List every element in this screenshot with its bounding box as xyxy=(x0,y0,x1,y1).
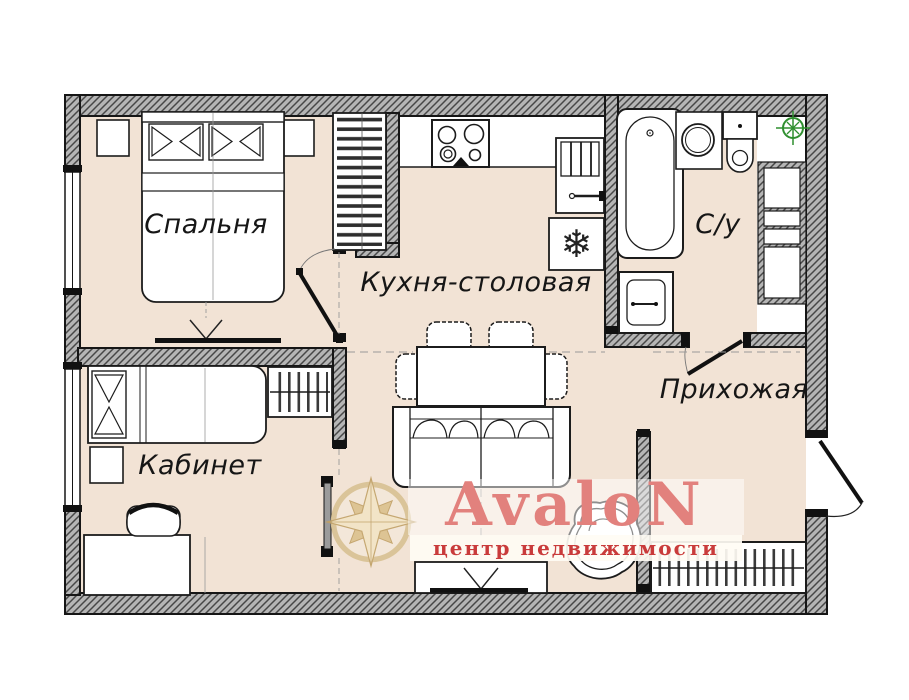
closet-shelves-icon xyxy=(337,117,382,246)
wall-bathroom-bottom-right xyxy=(744,333,806,347)
burner-icon xyxy=(439,127,456,144)
dining-table xyxy=(417,347,545,406)
room-label-bedroom: Спальня xyxy=(106,209,306,240)
shelf-cabinet xyxy=(764,247,800,298)
wall-right-lower xyxy=(806,510,827,614)
bedroom-closet xyxy=(333,113,386,250)
toilet xyxy=(723,112,757,172)
floorplan-canvas: ❄ xyxy=(0,0,909,700)
single-bed xyxy=(88,366,266,443)
sink xyxy=(676,112,722,169)
freezer: ❄ xyxy=(549,218,604,270)
wall-office-east xyxy=(333,348,346,447)
room-label-kitchen-dining: Кухня-столовая xyxy=(346,267,606,298)
wall-left-1 xyxy=(65,95,80,172)
room-label-hallway: Прихожая xyxy=(634,374,834,405)
desk-chair xyxy=(127,505,181,536)
room-label-office: Кабинет xyxy=(100,450,300,481)
wall-closet-right xyxy=(386,113,399,250)
sliding-door-panel xyxy=(324,483,331,549)
pillow xyxy=(92,371,126,438)
floorplan-drawing: ❄ xyxy=(0,0,909,700)
shelf-cabinet xyxy=(764,168,800,208)
pillow-right xyxy=(209,124,263,160)
shelf-cabinet xyxy=(764,229,800,244)
office-wardrobe xyxy=(268,367,332,417)
pillow-left xyxy=(149,124,203,160)
snowflake-icon: ❄ xyxy=(561,222,593,266)
nightstand-left xyxy=(97,120,129,156)
wall-bottom xyxy=(65,593,827,614)
room-label-bathroom: С/у xyxy=(668,209,768,240)
shelf-cabinet xyxy=(764,211,800,226)
oven-column xyxy=(556,138,605,213)
wall-bathroom-bottom-left xyxy=(605,333,689,347)
brand-watermark: AvaloN xyxy=(385,474,765,536)
washing-machine xyxy=(619,272,673,333)
desk xyxy=(84,535,190,595)
wall-left-3 xyxy=(65,508,80,595)
entrance-door xyxy=(806,438,862,516)
stove xyxy=(432,120,489,167)
brand-tagline: центр недвижимости xyxy=(410,535,742,561)
burner-icon xyxy=(465,125,484,144)
nightstand-right xyxy=(280,120,314,156)
burner-icon xyxy=(444,150,452,158)
burner-icon xyxy=(470,150,481,161)
wall-bedroom-office xyxy=(78,348,345,366)
